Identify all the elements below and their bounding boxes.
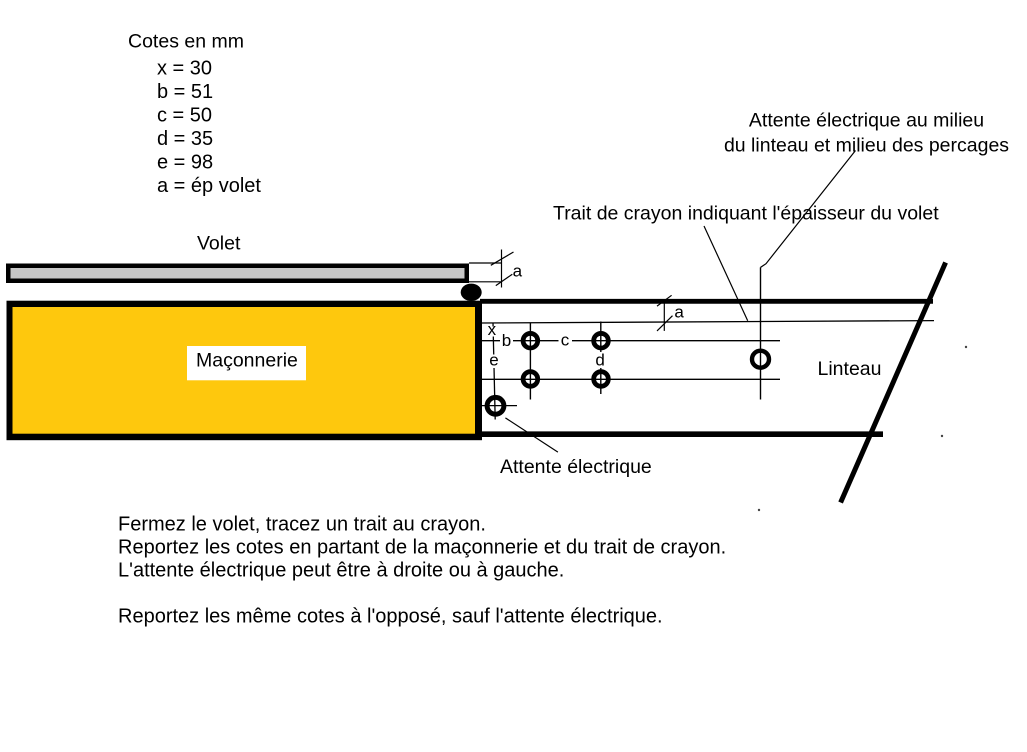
svg-text:Attente électrique: Attente électrique [500, 456, 652, 478]
svg-text:a: a [674, 302, 684, 321]
svg-text:b = 51: b = 51 [157, 81, 213, 103]
svg-text:L'attente électrique peut être: L'attente électrique peut être à droite … [118, 560, 564, 582]
svg-text:Attente électrique au milieu: Attente électrique au milieu [749, 109, 984, 131]
svg-text:Volet: Volet [197, 232, 241, 254]
svg-text:a: a [513, 262, 523, 281]
svg-text:x: x [488, 320, 497, 339]
svg-text:c: c [561, 331, 570, 350]
svg-text:b: b [502, 331, 511, 350]
svg-text:Trait de crayon indiquant l'ép: Trait de crayon indiquant l'épaisseur du… [553, 203, 939, 225]
svg-text:c = 50: c = 50 [157, 105, 212, 127]
svg-text:Maçonnerie: Maçonnerie [196, 350, 298, 372]
svg-text:Fermez le volet, tracez un tra: Fermez le volet, tracez un trait au cray… [118, 514, 486, 536]
svg-text:Reportez les même cotes à l'op: Reportez les même cotes à l'opposé, sauf… [118, 606, 663, 628]
svg-text:e = 98: e = 98 [157, 152, 213, 174]
svg-text:x = 30: x = 30 [157, 58, 212, 80]
svg-text:Reportez les cotes en partant: Reportez les cotes en partant de la maço… [118, 537, 726, 559]
svg-text:e: e [489, 351, 498, 370]
svg-text:d = 35: d = 35 [157, 128, 213, 150]
svg-text:du linteau et milieu des perca: du linteau et milieu des percages [724, 134, 1009, 156]
svg-text:d: d [595, 351, 604, 370]
svg-text:a = ép volet: a = ép volet [157, 175, 261, 197]
svg-text:Cotes en mm: Cotes en mm [128, 30, 244, 52]
svg-text:Linteau: Linteau [818, 358, 882, 380]
